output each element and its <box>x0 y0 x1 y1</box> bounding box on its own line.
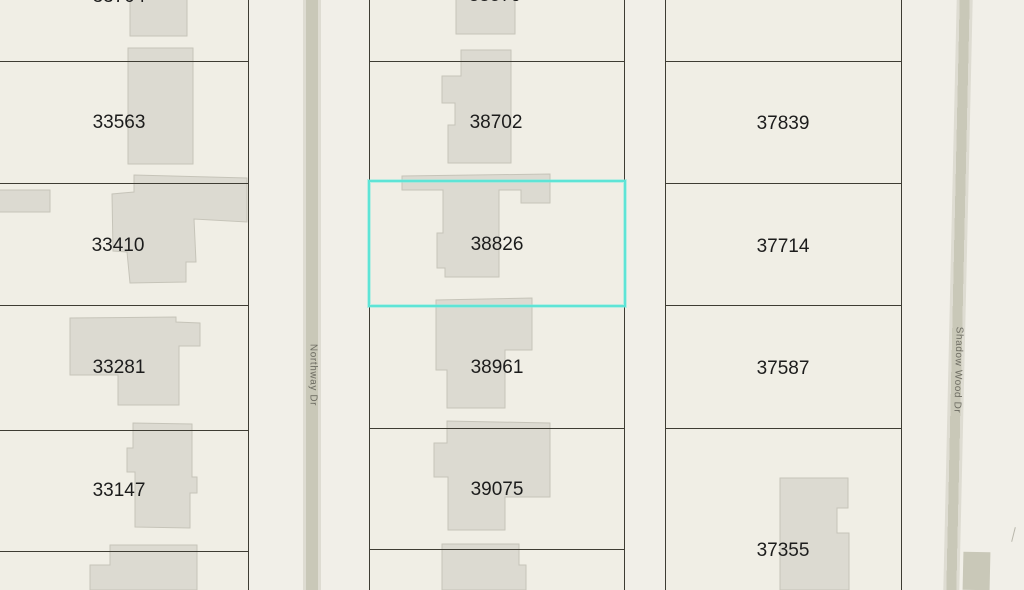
parcel-unlabeled[interactable] <box>369 549 624 590</box>
parcel-map[interactable]: 33704 33563 33410 33281 33147 38579 3870… <box>0 0 1024 590</box>
parcel-label: 37587 <box>757 358 810 380</box>
parcel-unlabeled[interactable] <box>0 551 249 590</box>
parcel-38579[interactable] <box>369 0 624 61</box>
parcel-label: 33281 <box>93 357 146 379</box>
parcel-label: 33563 <box>93 112 146 134</box>
parcel-label: 33410 <box>92 235 145 257</box>
parcel-unlabeled[interactable] <box>665 0 901 61</box>
parcel-label: 38579 <box>469 0 522 7</box>
parcel-label: 37839 <box>757 113 810 135</box>
parcel-boundary <box>901 0 902 590</box>
parcel-37355[interactable] <box>665 428 901 590</box>
parcel-label: 37714 <box>757 236 810 258</box>
parcel-label: 39075 <box>471 479 524 501</box>
parcel-label: 37355 <box>757 540 810 562</box>
parcel-label-selected: 38826 <box>471 234 524 256</box>
parcel-label: 33704 <box>93 0 146 8</box>
parcel-label: 38702 <box>470 112 523 134</box>
parcel-label: 38961 <box>471 357 524 379</box>
parcel-label: 33147 <box>93 480 146 502</box>
parcel-33704[interactable] <box>0 0 249 61</box>
